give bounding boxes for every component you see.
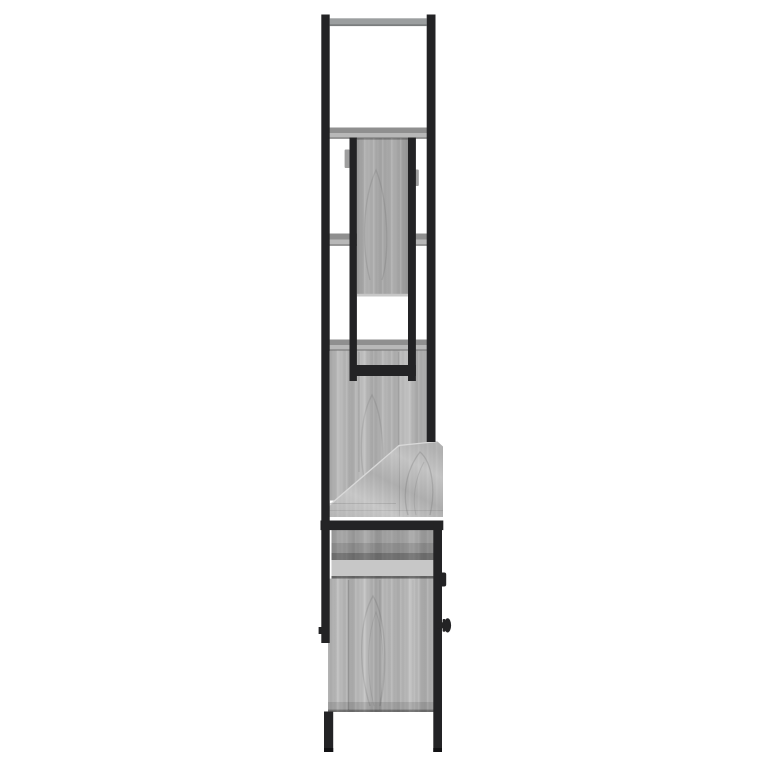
furniture-side-view: [0, 0, 767, 767]
top-rail-shadow: [330, 24, 427, 26]
recess-shelf-edge: [332, 560, 434, 576]
product-photo: [0, 0, 767, 767]
shelf-top: [329, 128, 427, 139]
left-post-bolt: [319, 627, 322, 634]
back-leg-foot: [324, 748, 333, 752]
recess-shadow: [332, 530, 434, 543]
top-rail-bar: [330, 18, 427, 24]
shelf-top-surface: [329, 128, 427, 134]
recess-shelf-shadow-line: [332, 576, 434, 579]
base-cabinet: [328, 530, 434, 712]
frame-left-post: [321, 15, 329, 644]
mirror-rail-left: [350, 138, 357, 382]
top-rail: [330, 18, 427, 26]
recess-shadow: [332, 553, 434, 560]
door-bottom-edge: [328, 710, 434, 712]
mirror-crossbar: [350, 365, 416, 376]
mirror-panel-top-edge: [357, 138, 408, 140]
cabinet-top-frame-bar: [321, 521, 444, 531]
hinge-fitting-left: [345, 150, 350, 169]
door-hinge: [440, 573, 446, 587]
door-knob: [444, 618, 451, 632]
frame-right-post: [427, 15, 436, 443]
shelf-front-edge: [329, 133, 427, 138]
front-leg-foot: [433, 748, 442, 752]
cabinet-front-post-and-leg: [433, 521, 442, 752]
mirror-rail-right: [408, 138, 416, 382]
knob-stem: [437, 622, 443, 628]
mirror-panel-bottom-edge: [357, 294, 408, 297]
cabinet-back-leg: [324, 712, 333, 753]
recess-shadow: [332, 543, 434, 553]
cabinet-door-grain: [328, 579, 434, 712]
